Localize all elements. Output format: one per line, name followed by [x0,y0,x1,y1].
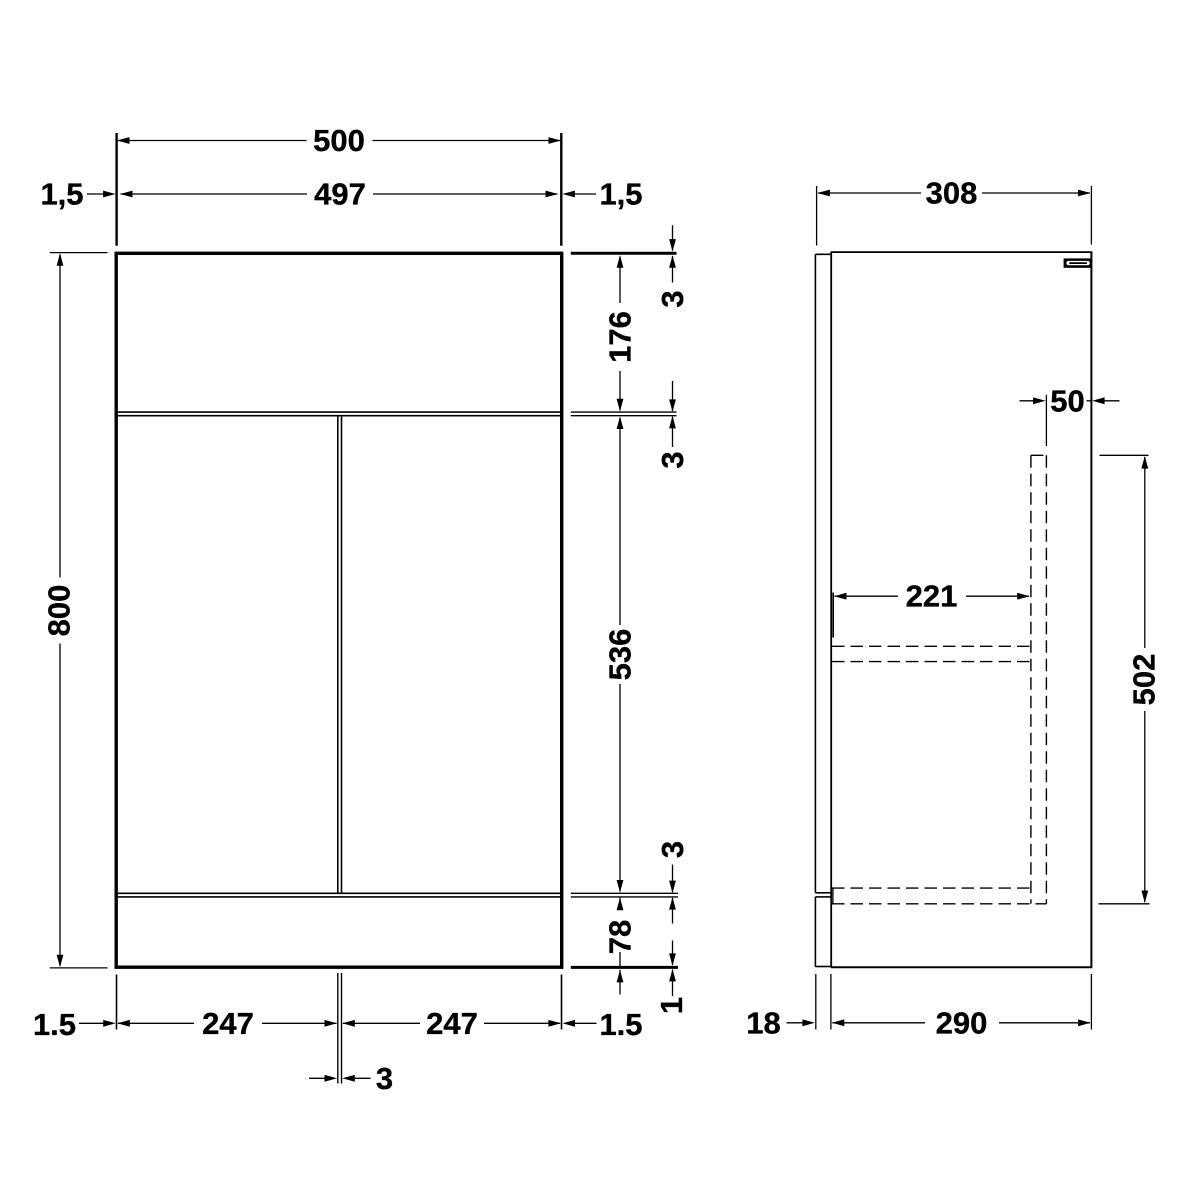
svg-text:502: 502 [1127,654,1162,706]
svg-text:176: 176 [603,311,638,363]
svg-text:18: 18 [746,1005,780,1040]
svg-text:1,5: 1,5 [599,177,642,212]
svg-text:3: 3 [655,290,690,307]
svg-text:247: 247 [202,1006,254,1041]
svg-text:1: 1 [654,997,689,1014]
svg-text:3: 3 [655,451,690,468]
svg-text:536: 536 [603,629,638,681]
svg-text:308: 308 [926,176,978,211]
svg-text:1,5: 1,5 [40,177,83,212]
svg-text:497: 497 [314,177,366,212]
svg-text:290: 290 [936,1005,988,1040]
svg-text:247: 247 [426,1006,478,1041]
svg-text:221: 221 [906,579,958,614]
svg-text:3: 3 [376,1061,393,1096]
svg-text:1.5: 1.5 [33,1007,76,1042]
svg-text:78: 78 [603,920,638,954]
svg-text:800: 800 [42,585,77,637]
svg-text:3: 3 [655,841,690,858]
svg-text:50: 50 [1050,383,1084,418]
svg-text:1.5: 1.5 [599,1007,642,1042]
svg-text:500: 500 [313,123,365,158]
